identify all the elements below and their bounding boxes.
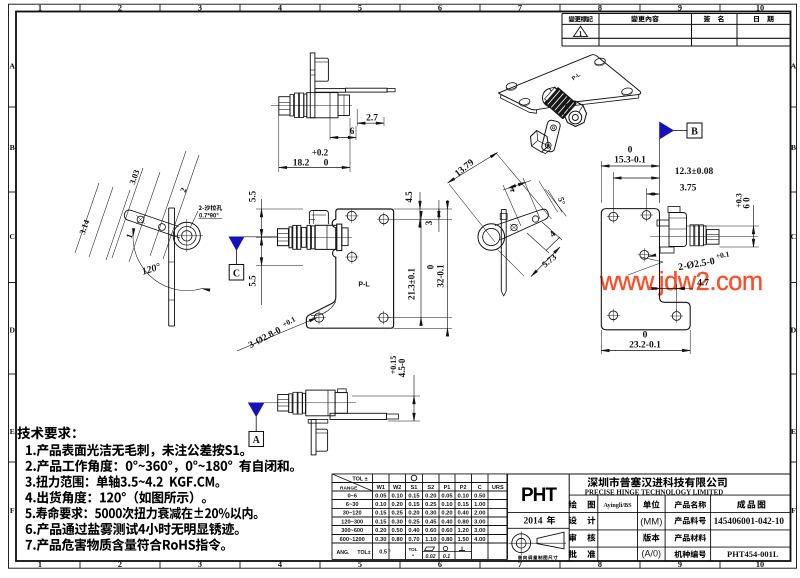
svg-text:32-0.1: 32-0.1	[436, 264, 446, 288]
svg-text:8: 8	[598, 560, 602, 569]
svg-text:P1: P1	[444, 485, 451, 491]
svg-text:2: 2	[118, 560, 122, 569]
svg-text:120~300: 120~300	[341, 519, 363, 525]
svg-text:0.10: 0.10	[375, 502, 386, 508]
svg-text:B: B	[791, 143, 796, 152]
svg-text:0.25: 0.25	[392, 511, 404, 517]
svg-text:F: F	[10, 506, 15, 515]
svg-text:0.80: 0.80	[441, 537, 452, 543]
svg-text:15.3-0.1: 15.3-0.1	[614, 156, 646, 166]
svg-text:S2: S2	[427, 485, 434, 491]
svg-text:0: 0	[628, 146, 633, 156]
svg-text:4.7: 4.7	[697, 279, 709, 289]
svg-text:4: 4	[278, 560, 282, 569]
svg-text:PHT: PHT	[521, 485, 557, 506]
svg-text:0.50: 0.50	[392, 528, 403, 534]
svg-text:4: 4	[278, 4, 282, 13]
svg-text:1.20: 1.20	[458, 528, 469, 534]
svg-text:1: 1	[38, 4, 42, 13]
svg-text:2.7: 2.7	[366, 114, 378, 124]
svg-text:D: D	[791, 325, 797, 334]
svg-text:4.5: 4.5	[404, 191, 414, 203]
svg-text:1: 1	[38, 560, 42, 569]
svg-text:2014: 2014	[524, 517, 543, 527]
svg-text:0.1: 0.1	[443, 554, 450, 560]
svg-text:9: 9	[678, 4, 682, 13]
svg-text:6: 6	[438, 4, 442, 13]
svg-text:0.20: 0.20	[392, 502, 403, 508]
svg-text:B: B	[691, 127, 698, 138]
svg-text:0.20: 0.20	[425, 493, 436, 499]
svg-text:W2: W2	[393, 485, 401, 491]
svg-text:W1: W1	[377, 485, 385, 491]
svg-text:5.5: 5.5	[248, 275, 258, 287]
svg-text:P2: P2	[460, 485, 467, 491]
svg-text:0.60: 0.60	[441, 528, 452, 534]
svg-text:1.10: 1.10	[425, 537, 436, 543]
svg-text:P-L: P-L	[358, 282, 370, 289]
svg-text:1.00: 1.00	[474, 502, 485, 508]
svg-text:5: 5	[358, 4, 362, 13]
svg-text:0.80: 0.80	[458, 519, 469, 525]
svg-text:E: E	[791, 427, 796, 436]
svg-text:0.80: 0.80	[392, 537, 403, 543]
svg-text:21.3±0.1: 21.3±0.1	[407, 268, 417, 300]
svg-text:23.2-0.1: 23.2-0.1	[629, 341, 661, 351]
svg-text:0.40: 0.40	[441, 519, 452, 525]
svg-text:0.70: 0.70	[408, 537, 419, 543]
svg-text:6: 6	[438, 560, 442, 569]
svg-text:ANG.: ANG.	[337, 550, 351, 556]
svg-text:6: 6	[350, 127, 355, 137]
svg-text:0.15: 0.15	[375, 511, 387, 517]
svg-text:Ayingli/BS: Ayingli/BS	[604, 502, 633, 509]
svg-text:(A/0): (A/0)	[642, 548, 662, 558]
svg-text:2: 2	[118, 4, 122, 13]
svg-text:C: C	[478, 485, 482, 491]
svg-text:3: 3	[198, 560, 202, 569]
svg-text:F: F	[791, 506, 796, 515]
svg-text:3: 3	[424, 220, 434, 225]
svg-text:5: 5	[358, 560, 362, 569]
svg-text:TOL: TOL	[408, 547, 417, 552]
svg-text:D: D	[9, 325, 15, 334]
svg-text:TOL ±: TOL ±	[352, 477, 367, 483]
svg-text:1.50: 1.50	[458, 537, 469, 543]
svg-text:3.00: 3.00	[474, 519, 485, 525]
svg-text:600~1200: 600~1200	[340, 537, 365, 543]
svg-text:2.00: 2.00	[474, 511, 485, 517]
svg-text:C: C	[9, 232, 15, 241]
svg-text:0.20: 0.20	[408, 511, 419, 517]
svg-text:300~600: 300~600	[341, 528, 363, 534]
svg-text:0.25: 0.25	[408, 519, 420, 525]
svg-text:3.00: 3.00	[474, 528, 485, 534]
svg-text:0: 0	[426, 264, 436, 269]
svg-text:•: •	[412, 553, 414, 559]
svg-text:0.30: 0.30	[375, 537, 386, 543]
svg-text:0.60: 0.60	[425, 528, 436, 534]
svg-text:145406001-042-10: 145406001-042-10	[714, 516, 785, 526]
svg-text:0.10: 0.10	[441, 502, 452, 508]
svg-text:18.2: 18.2	[293, 159, 310, 169]
svg-text:0.30: 0.30	[392, 519, 403, 525]
svg-text:8: 8	[598, 4, 602, 13]
svg-text:A: A	[9, 61, 15, 70]
svg-text:A: A	[791, 61, 797, 70]
svg-text:+0.2: +0.2	[312, 148, 329, 158]
svg-text:0.20: 0.20	[375, 528, 386, 534]
svg-text:9: 9	[678, 560, 682, 569]
svg-text:0: 0	[643, 331, 648, 341]
svg-text:0.50: 0.50	[474, 493, 485, 499]
svg-text:10: 10	[756, 4, 764, 13]
svg-text:0.10: 0.10	[458, 493, 469, 499]
svg-text:A: A	[253, 435, 261, 446]
svg-text:0.05: 0.05	[441, 493, 453, 499]
svg-text:6 0: 6 0	[742, 197, 752, 209]
svg-text:5.5: 5.5	[248, 190, 258, 202]
svg-text:0.15: 0.15	[408, 502, 420, 508]
svg-text:12.3±0.08: 12.3±0.08	[675, 167, 714, 177]
svg-text:B: B	[10, 143, 15, 152]
svg-text:1: 1	[579, 30, 583, 38]
svg-text:3: 3	[198, 4, 202, 13]
svg-text:0.05: 0.05	[375, 493, 387, 499]
svg-text:3.75: 3.75	[680, 184, 697, 194]
svg-text:0.15: 0.15	[408, 493, 420, 499]
svg-text:URS: URS	[492, 485, 504, 491]
svg-text:4.00: 4.00	[474, 537, 485, 543]
svg-text:0.40: 0.40	[458, 511, 469, 517]
svg-text:PRECISE HINGE TECHNOLOGY LIMIT: PRECISE HINGE TECHNOLOGY LIMITED	[585, 489, 723, 496]
svg-text:30~120: 30~120	[343, 511, 362, 517]
svg-text:0.10: 0.10	[392, 493, 403, 499]
svg-text:0.15: 0.15	[375, 519, 387, 525]
svg-text:PHT454-001L: PHT454-001L	[727, 549, 779, 559]
svg-text:7: 7	[518, 560, 522, 569]
svg-text:4.5-0: 4.5-0	[397, 358, 407, 377]
svg-text:RANGE: RANGE	[340, 486, 358, 492]
svg-text:C: C	[233, 269, 240, 280]
svg-text:0.25: 0.25	[425, 502, 437, 508]
svg-text:(MM): (MM)	[640, 516, 662, 527]
svg-text:TOL±: TOL±	[357, 550, 370, 556]
svg-text:10: 10	[756, 560, 764, 569]
svg-text:0~6: 0~6	[347, 493, 357, 499]
svg-text:C: C	[791, 232, 797, 241]
svg-text:0.40: 0.40	[408, 528, 419, 534]
svg-text:6~30: 6~30	[346, 502, 359, 508]
svg-text:0.02: 0.02	[425, 554, 435, 560]
svg-text:0.15: 0.15	[458, 502, 470, 508]
svg-text:0.45: 0.45	[425, 519, 437, 525]
svg-text:0: 0	[324, 159, 329, 169]
svg-text:0.20: 0.20	[441, 511, 452, 517]
svg-text:S1: S1	[411, 485, 418, 491]
svg-text:E: E	[10, 427, 15, 436]
svg-text:0.5 °: 0.5 °	[379, 550, 391, 556]
svg-text:7: 7	[518, 4, 522, 13]
svg-text:0.30: 0.30	[425, 511, 436, 517]
